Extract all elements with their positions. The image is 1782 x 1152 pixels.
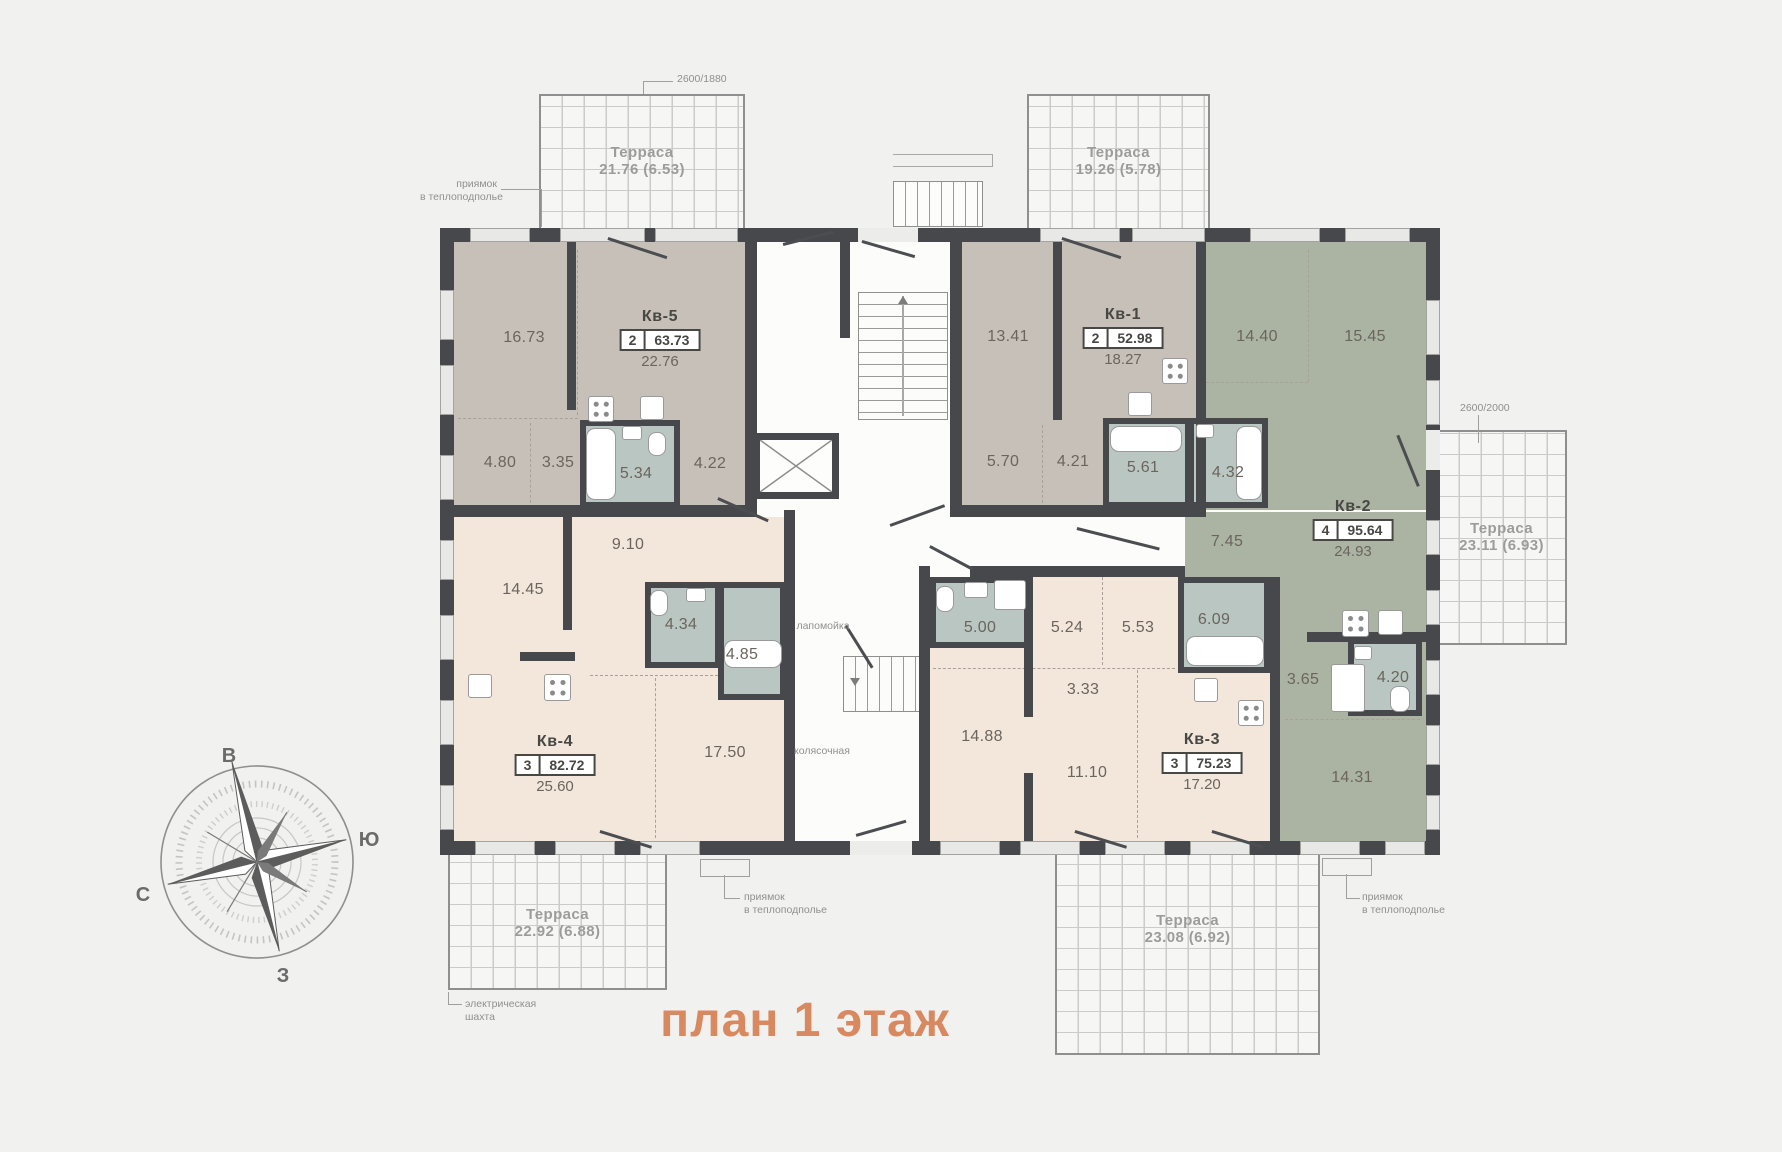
window — [1250, 228, 1320, 242]
window — [1020, 841, 1080, 855]
terrace-opening — [1426, 430, 1440, 470]
window — [1040, 228, 1120, 242]
apartment-area-box: 4 95.64 — [1313, 519, 1394, 541]
stove — [588, 396, 614, 422]
apartment-area-box: 2 52.98 — [1083, 327, 1164, 349]
room-area-label: 17.50 — [704, 744, 746, 762]
wall — [1196, 242, 1206, 510]
wall — [454, 505, 757, 517]
stair-rail — [902, 296, 904, 416]
window — [1300, 841, 1360, 855]
window — [440, 785, 454, 830]
total-area: 95.64 — [1338, 521, 1391, 539]
room-area-label: 4.80 — [484, 454, 516, 472]
window — [1426, 300, 1440, 355]
sink — [1354, 646, 1372, 660]
terrace-label: Терраса 22.92 (6.88) — [515, 906, 601, 940]
room-area-label: 13.41 — [987, 328, 1029, 346]
window — [560, 228, 645, 242]
kitchen-area: 17.20 — [1162, 776, 1243, 793]
page-title: план 1 этаж — [660, 993, 950, 1048]
electrical-shaft-note: электрическая шахта — [465, 998, 536, 1023]
terrace-title: Терраса — [515, 906, 601, 923]
wall — [745, 242, 757, 510]
apartment-header-kv3: Кв-3 3 75.23 17.20 — [1162, 731, 1243, 793]
terrace-area: 19.26 (5.78) — [1076, 161, 1162, 178]
compass-rose: В Ю С З — [127, 732, 387, 992]
pit-outline — [1322, 858, 1372, 876]
apartment-header-kv5: Кв-5 2 63.73 22.76 — [620, 308, 701, 370]
room-area-label: 5.34 — [620, 465, 652, 483]
toilet — [1390, 686, 1410, 712]
wall — [950, 505, 1206, 517]
window — [1426, 520, 1440, 555]
apartment-name: Кв-5 — [620, 308, 701, 326]
window — [640, 841, 700, 855]
room-area-label: 14.88 — [961, 728, 1003, 746]
room-area-label: 14.31 — [1331, 769, 1373, 787]
room-area-label: 4.32 — [1212, 464, 1244, 482]
terrace-area: 23.08 (6.92) — [1145, 929, 1231, 946]
room-area-label: 5.61 — [1127, 459, 1159, 477]
room-area-label: 5.53 — [1122, 619, 1154, 637]
apartment-name: Кв-1 — [1083, 306, 1164, 324]
sink — [686, 588, 706, 602]
room-area-label: 16.73 — [503, 329, 545, 347]
kitchen-sink — [1128, 392, 1152, 416]
stove — [544, 674, 571, 701]
room-area-label: 4.20 — [1377, 669, 1409, 687]
kitchen-area: 25.60 — [515, 778, 596, 795]
entrance-railing — [992, 154, 993, 167]
rooms-count: 4 — [1315, 521, 1339, 539]
terrace-label: Терраса 21.76 (6.53) — [599, 144, 685, 178]
dashed-divider — [1137, 670, 1138, 838]
terrace-title: Терраса — [1076, 144, 1162, 161]
dashed-divider — [1042, 425, 1043, 503]
leader-line — [643, 81, 673, 82]
apartment-area-box: 3 75.23 — [1162, 752, 1243, 774]
terrace-area: 21.76 (6.53) — [599, 161, 685, 178]
sink — [622, 426, 642, 440]
room-area-label: 15.45 — [1344, 328, 1386, 346]
wall — [1024, 773, 1033, 841]
window — [1345, 228, 1410, 242]
window — [440, 540, 454, 580]
compass-star — [139, 738, 374, 979]
dashed-divider — [1308, 250, 1309, 382]
terrace-title: Терраса — [1145, 912, 1231, 929]
terrace-bottom-left: Терраса 22.92 (6.88) — [448, 852, 667, 990]
dimension-label: 2600/2000 — [1460, 402, 1510, 414]
pit-note-left: приямок в теплоподполье — [420, 178, 497, 203]
total-area: 63.73 — [645, 331, 698, 349]
sink — [964, 582, 988, 598]
leader-line — [643, 81, 644, 94]
rooms-count: 3 — [517, 756, 541, 774]
room-area-label: 4.22 — [694, 455, 726, 473]
leader-line — [1478, 415, 1479, 443]
total-area: 75.23 — [1187, 754, 1240, 772]
window — [440, 365, 454, 415]
apartment-header-kv4: Кв-4 3 82.72 25.60 — [515, 733, 596, 795]
kitchen-sink — [468, 674, 492, 698]
wall — [563, 517, 572, 630]
wall — [840, 242, 850, 338]
leader-line — [501, 189, 541, 190]
room-area-label: 11.10 — [1067, 764, 1107, 782]
stroller-room-label: колясочная — [794, 745, 850, 758]
apartment-name: Кв-3 — [1162, 731, 1243, 749]
terrace-right: Терраса 23.11 (6.93) — [1436, 430, 1567, 645]
room-area-label: 14.45 — [502, 581, 544, 599]
room-area-label: 4.34 — [665, 616, 697, 634]
shaft-note-line: шахта — [465, 1011, 536, 1024]
apartment-area-box: 2 63.73 — [620, 329, 701, 351]
stove — [1162, 358, 1188, 384]
terrace-label: Терраса 19.26 (5.78) — [1076, 144, 1162, 178]
kitchen-area: 22.76 — [620, 353, 701, 370]
entrance-railing — [893, 154, 993, 155]
shower — [1331, 664, 1365, 712]
toilet — [648, 432, 666, 456]
room-area-label: 7.45 — [1211, 533, 1243, 551]
room-area-label: 14.40 — [1236, 328, 1278, 346]
dashed-divider — [1285, 719, 1420, 720]
wash-basin — [994, 580, 1026, 610]
bathtub — [1186, 636, 1264, 666]
window — [1426, 725, 1440, 765]
terrace-label: Терраса 23.08 (6.92) — [1145, 912, 1231, 946]
room-area-label: 3.33 — [1067, 681, 1099, 699]
compass-south-label: Ю — [359, 829, 380, 851]
stair-up-arrow-icon — [898, 296, 908, 304]
window — [1132, 228, 1205, 242]
wall — [567, 242, 576, 410]
terrace-title: Терраса — [599, 144, 685, 161]
wall — [919, 577, 930, 841]
window — [475, 841, 535, 855]
sink — [1196, 424, 1214, 438]
pit-note-bottom-middle: приямок в теплоподполье — [744, 891, 827, 916]
leader-line — [724, 898, 740, 899]
dashed-divider — [458, 418, 578, 419]
terrace-title: Терраса — [1459, 520, 1544, 537]
window — [1426, 795, 1440, 830]
wall — [1270, 577, 1280, 841]
dashed-divider — [1102, 577, 1103, 665]
elevator-shaft — [753, 433, 839, 499]
window — [1426, 660, 1440, 695]
room-area-label: 5.70 — [987, 453, 1019, 471]
room-area-label: 4.85 — [726, 646, 758, 664]
floor-plan-page: Терраса 21.76 (6.53) Терраса 19.26 (5.78… — [0, 0, 1782, 1152]
entrance-opening — [858, 228, 918, 242]
stove — [1342, 610, 1369, 637]
kitchen-sink — [1378, 610, 1403, 635]
window — [470, 228, 530, 242]
dashed-divider — [655, 678, 656, 838]
terrace-top-right: Терраса 19.26 (5.78) — [1027, 94, 1210, 234]
leader-line — [1346, 898, 1360, 899]
room-area-label: 4.21 — [1057, 453, 1089, 471]
leader-line — [448, 992, 449, 1004]
rooms-count: 2 — [622, 331, 646, 349]
room-area-label: 6.09 — [1198, 611, 1230, 629]
window — [440, 700, 454, 745]
shaft-note-line: электрическая — [465, 998, 536, 1011]
leader-line — [1346, 874, 1347, 898]
window — [1385, 841, 1425, 855]
room-area-label: 5.24 — [1051, 619, 1083, 637]
room-area-label: 5.00 — [964, 619, 996, 637]
terrace-area: 22.92 (6.88) — [515, 923, 601, 940]
bathtub — [586, 428, 616, 500]
leader-line — [448, 1004, 462, 1005]
window — [1426, 380, 1440, 425]
apartment-name: Кв-2 — [1313, 498, 1394, 516]
window — [440, 615, 454, 660]
compass-east-label: В — [222, 745, 236, 767]
wall — [520, 652, 575, 661]
apartment-area-box: 3 82.72 — [515, 754, 596, 776]
wall — [919, 566, 930, 578]
apartment-header-kv1: Кв-1 2 52.98 18.27 — [1083, 306, 1164, 368]
pit-outline — [700, 859, 750, 877]
terrace-top-left: Терраса 21.76 (6.53) — [539, 94, 745, 234]
dashed-divider — [577, 250, 578, 415]
exit-opening — [850, 841, 912, 855]
room-area-label: 3.35 — [542, 454, 574, 472]
stair-down-arrow-icon — [850, 678, 860, 686]
kitchen-sink — [1194, 678, 1218, 702]
leader-line — [724, 875, 725, 898]
entrance-railing — [893, 166, 993, 167]
dashed-divider — [530, 423, 531, 503]
compass-west-label: З — [277, 965, 290, 987]
wall — [970, 566, 1185, 577]
dashed-divider — [1206, 382, 1308, 383]
pit-note-bottom-right: приямок в теплоподполье — [1362, 891, 1445, 916]
entrance-steps — [893, 181, 983, 227]
pit-note-line: в теплоподполье — [744, 904, 827, 917]
terrace-bottom-right: Терраса 23.08 (6.92) — [1055, 852, 1320, 1055]
window — [555, 841, 615, 855]
wall — [784, 510, 795, 841]
window — [1190, 841, 1250, 855]
window — [655, 228, 738, 242]
pit-note-line: приямок — [744, 891, 827, 904]
apartment-name: Кв-4 — [515, 733, 596, 751]
window — [440, 455, 454, 500]
pit-note-line: в теплоподполье — [420, 191, 497, 204]
pit-note-line: в теплоподполье — [1362, 904, 1445, 917]
room-area-label: 9.10 — [612, 536, 644, 554]
elevator-x-icon — [760, 440, 832, 492]
toilet — [650, 590, 668, 616]
kitchen-area: 18.27 — [1083, 351, 1164, 368]
bathtub — [1110, 426, 1182, 452]
wall — [1053, 242, 1062, 420]
kitchen-area: 24.93 — [1313, 543, 1394, 560]
pit-note-line: приямок — [420, 178, 497, 191]
terrace-area: 23.11 (6.93) — [1459, 537, 1544, 554]
wall — [950, 242, 962, 510]
rooms-count: 3 — [1164, 754, 1188, 772]
toilet — [936, 586, 954, 612]
kitchen-sink — [640, 396, 664, 420]
terrace-label: Терраса 23.11 (6.93) — [1459, 520, 1544, 554]
stove — [1238, 700, 1264, 726]
bathtub — [1236, 426, 1262, 500]
dashed-divider — [933, 668, 1175, 669]
total-area: 82.72 — [540, 756, 593, 774]
window — [1426, 590, 1440, 625]
leader-line — [541, 189, 542, 227]
rooms-count: 2 — [1085, 329, 1109, 347]
window — [440, 290, 454, 340]
window — [940, 841, 1000, 855]
apartment-header-kv2: Кв-2 4 95.64 24.93 — [1313, 498, 1394, 560]
room-area-label: 3.65 — [1287, 671, 1319, 689]
total-area: 52.98 — [1108, 329, 1161, 347]
dimension-label: 2600/1880 — [677, 73, 727, 85]
paw-wash-label: лапомойка — [796, 620, 849, 633]
pit-note-line: приямок — [1362, 891, 1445, 904]
compass-north-label: С — [136, 884, 150, 906]
